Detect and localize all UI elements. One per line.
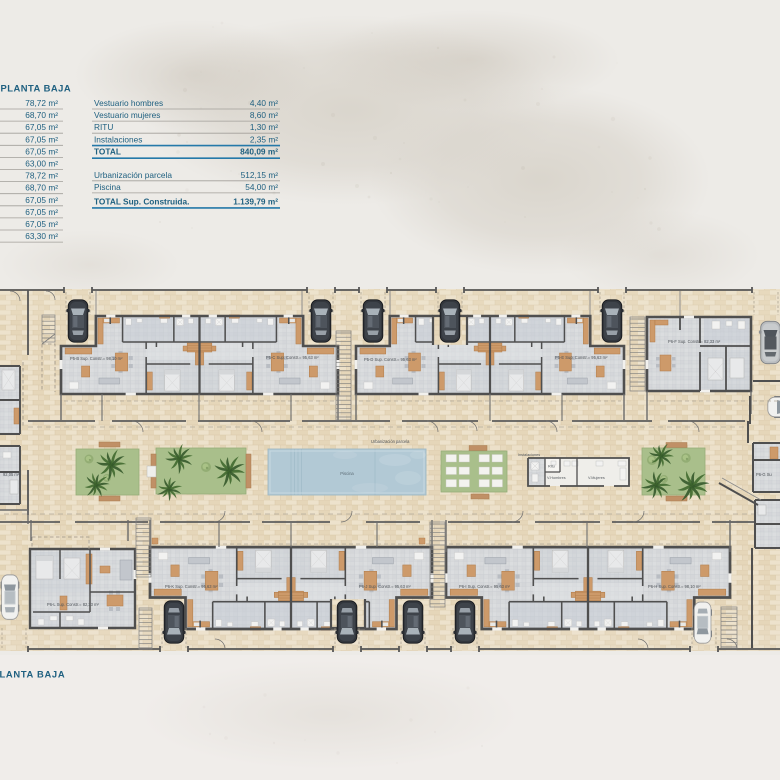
- svg-text:Piscina: Piscina: [340, 471, 354, 476]
- svg-text:67,05 m²: 67,05 m²: [25, 195, 58, 205]
- svg-text:Instalaciones: Instalaciones: [518, 453, 540, 457]
- svg-text:67,05 m²: 67,05 m²: [25, 219, 58, 229]
- svg-text:PLANTA BAJA: PLANTA BAJA: [1, 83, 72, 94]
- svg-text:67,05 m²: 67,05 m²: [25, 207, 58, 217]
- svg-text:840,09 m²: 840,09 m²: [240, 146, 278, 156]
- svg-text:Urbanización parcela: Urbanización parcela: [94, 170, 172, 180]
- svg-text:P6-L Sup. Constr.= 82,33 m²: P6-L Sup. Constr.= 82,33 m²: [47, 602, 99, 607]
- svg-text:1,30 m²: 1,30 m²: [250, 122, 278, 132]
- svg-text:P5-C Sup. Constr.= 95,63 m²: P5-C Sup. Constr.= 95,63 m²: [266, 355, 319, 360]
- svg-text:P5-E Sup. Constr.= 95,63 m²: P5-E Sup. Constr.= 95,63 m²: [555, 355, 608, 360]
- svg-text:P6-G Su: P6-G Su: [756, 472, 772, 477]
- svg-text:63,30 m²: 63,30 m²: [25, 231, 58, 241]
- svg-text:68,70 m²: 68,70 m²: [25, 110, 58, 120]
- svg-text:67,05 m²: 67,05 m²: [25, 134, 58, 144]
- svg-text:512,15 m²: 512,15 m²: [241, 170, 279, 180]
- svg-text:78,72 m²: 78,72 m²: [25, 98, 58, 108]
- svg-text:1.139,79 m²: 1.139,79 m²: [233, 197, 278, 207]
- svg-text:P6-I Sup. Constr.= 95,63 m²: P6-I Sup. Constr.= 95,63 m²: [459, 584, 510, 589]
- svg-text:Vestuario hombres: Vestuario hombres: [94, 98, 163, 108]
- svg-text:PLANTA BAJA: PLANTA BAJA: [0, 669, 65, 680]
- svg-text:67,05 m²: 67,05 m²: [25, 146, 58, 156]
- svg-text:63,00 m²: 63,00 m²: [25, 159, 58, 169]
- svg-text:P6-H Sup. Constr.= 98,10 m²: P6-H Sup. Constr.= 98,10 m²: [648, 584, 701, 589]
- svg-text:67,05 m²: 67,05 m²: [25, 122, 58, 132]
- svg-text:Piscina: Piscina: [94, 182, 121, 192]
- svg-text:Vestuario mujeres: Vestuario mujeres: [94, 110, 160, 120]
- svg-text:P6-F Sup. Constr.= 82,33 m²: P6-F Sup. Constr.= 82,33 m²: [668, 339, 721, 344]
- svg-text:TOTAL: TOTAL: [94, 146, 121, 156]
- svg-text:78,72 m²: 78,72 m²: [25, 171, 58, 181]
- svg-text:P5-B Sup. Constr.= 98,10 m²: P5-B Sup. Constr.= 98,10 m²: [70, 356, 123, 361]
- svg-text:TOTAL Sup. Construida.: TOTAL Sup. Construida.: [94, 197, 189, 207]
- svg-text:54,00 m²: 54,00 m²: [245, 182, 278, 192]
- svg-text:P6-K Sup. Constr.= 95,63 m²: P6-K Sup. Constr.= 95,63 m²: [165, 584, 218, 589]
- svg-text:Urbanización parcela: Urbanización parcela: [371, 439, 410, 444]
- svg-text:8,60 m²: 8,60 m²: [250, 110, 278, 120]
- svg-text:RITU: RITU: [94, 122, 113, 132]
- svg-text:V.Mujeres: V.Mujeres: [588, 476, 605, 480]
- svg-text:92,05 m²: 92,05 m²: [3, 472, 20, 477]
- svg-text:V.Hombres: V.Hombres: [547, 476, 566, 480]
- svg-text:P5-D Sup. Constr.= 95,63 m²: P5-D Sup. Constr.= 95,63 m²: [364, 357, 417, 362]
- svg-text:4,40 m²: 4,40 m²: [250, 98, 278, 108]
- svg-text:P6-J Sup. Constr.= 95,63 m²: P6-J Sup. Constr.= 95,63 m²: [359, 584, 411, 589]
- svg-text:Instalaciones: Instalaciones: [94, 134, 142, 144]
- svg-text:2,35 m²: 2,35 m²: [250, 134, 278, 144]
- svg-text:68,70 m²: 68,70 m²: [25, 183, 58, 193]
- svg-text:Ritu: Ritu: [548, 465, 555, 469]
